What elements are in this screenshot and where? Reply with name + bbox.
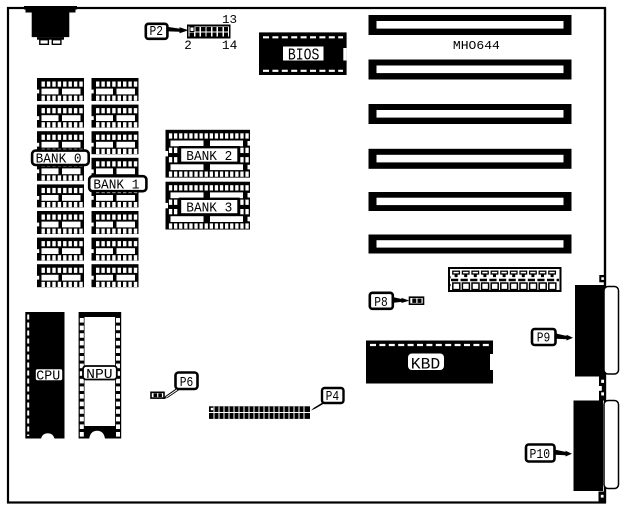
svg-text:P4: P4 xyxy=(326,390,340,405)
svg-text:MHO644: MHO644 xyxy=(453,39,500,53)
svg-text:NPU: NPU xyxy=(86,367,113,383)
svg-text:P2: P2 xyxy=(149,25,163,40)
svg-text:BIOS: BIOS xyxy=(288,47,320,66)
svg-text:14: 14 xyxy=(222,39,238,53)
svg-text:BANK 3: BANK 3 xyxy=(186,202,232,217)
svg-text:P10: P10 xyxy=(530,448,551,463)
svg-text:BANK 1: BANK 1 xyxy=(93,179,139,194)
svg-text:P6: P6 xyxy=(180,376,194,391)
svg-text:P9: P9 xyxy=(537,332,551,347)
svg-text:P8: P8 xyxy=(374,296,388,311)
svg-text:BANK 2: BANK 2 xyxy=(186,150,232,165)
svg-text:13: 13 xyxy=(222,13,237,27)
svg-text:2: 2 xyxy=(184,39,192,53)
svg-text:KBD: KBD xyxy=(411,356,441,374)
svg-text:CPU: CPU xyxy=(36,368,60,384)
svg-text:BANK 0: BANK 0 xyxy=(36,152,82,167)
